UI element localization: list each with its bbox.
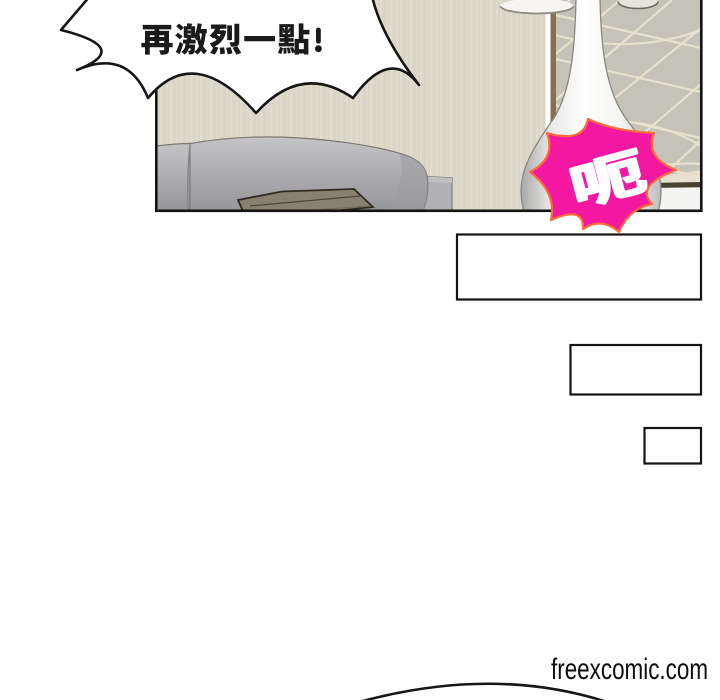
svg-text:freexcomic.com: freexcomic.com xyxy=(551,653,708,686)
